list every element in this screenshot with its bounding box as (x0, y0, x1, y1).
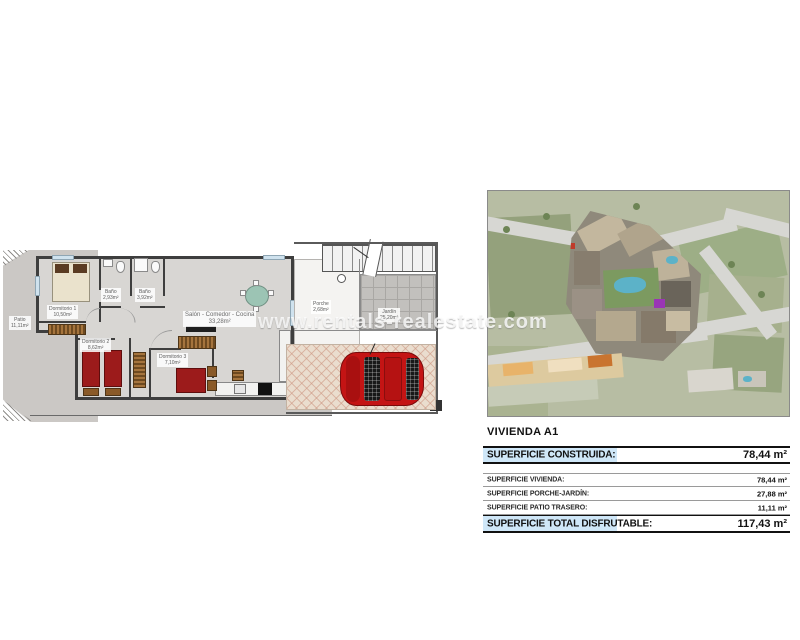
dining-chair-3 (253, 280, 259, 286)
row-value: 11,11 m² (758, 503, 787, 512)
surface-total-row: SUPERFICIE TOTAL DISFRUTABLE: 117,43 m² (483, 515, 790, 533)
label-bano2-area: 3,92m² (137, 295, 153, 301)
label-dormitorio2-area: 8,62m² (88, 345, 104, 351)
wall-bath2-right (163, 256, 165, 296)
aerial-pool-br (743, 376, 752, 382)
shower-bath2 (134, 258, 148, 272)
closet-strip (133, 352, 146, 388)
bed-dorm2-left (82, 350, 100, 387)
sofa (178, 336, 216, 349)
label-dormitorio1: Dormitorio 1 10,50m² (47, 305, 78, 319)
sink-bath1 (103, 259, 113, 267)
wall-dorm1-right-a (99, 256, 101, 290)
row-value: 78,44 m² (757, 476, 787, 485)
row-label: SUPERFICIE PATIO TRASERO: (487, 504, 587, 511)
row-label: SUPERFICIE PORCHE-JARDÍN: (487, 490, 589, 497)
surface-row-vivienda: SUPERFICIE VIVIENDA: 78,44 m² (483, 473, 790, 487)
boundary-top (294, 242, 438, 244)
aerial-buildings-bottomright (687, 367, 733, 392)
pillow-right (73, 264, 87, 273)
wall-bottom (75, 397, 294, 400)
aerial-building-7 (596, 311, 636, 341)
window-top-1 (52, 255, 74, 260)
car-windshield (364, 357, 380, 401)
surface-header-row: SUPERFICIE CONSTRUIDA: 78,44 m² (483, 446, 790, 464)
wall-top (36, 256, 294, 259)
aerial-building-4 (661, 281, 691, 307)
kitchen-cabinet (232, 370, 244, 381)
nightstand-dorm2-right (105, 388, 121, 396)
row-value: 27,88 m² (757, 489, 787, 498)
toilet-bath1 (116, 261, 125, 273)
nightstand-dorm3-bottom (207, 380, 217, 391)
kitchen-oven (258, 383, 272, 395)
pillow-left (55, 264, 69, 273)
aerial-pool-small (666, 256, 678, 264)
unit-title: VIVIENDA A1 (487, 426, 559, 438)
wall-bath-bottom-b (140, 306, 165, 308)
wall-step-v (75, 330, 78, 400)
label-salon-name: Salón - Comedor - Cocina (185, 312, 254, 318)
nightstand-dorm2-left (83, 388, 99, 396)
label-patio: Patio 11,11m² (9, 316, 31, 330)
watermark-text: www.rentals-realestate.com (258, 311, 548, 334)
label-dormitorio1-area: 10,50m² (53, 312, 71, 318)
label-patio-area: 11,11m² (11, 323, 29, 329)
aerial-purple-roof (654, 299, 665, 308)
label-salon: Salón - Comedor - Cocina 33,28m² (183, 311, 256, 327)
label-bano1-area: 2,93m² (103, 295, 119, 301)
surface-row-patio-trasero: SUPERFICIE PATIO TRASERO: 11,11 m² (483, 501, 790, 515)
label-dormitorio3-area: 7,10m² (165, 360, 181, 366)
dining-chair-2 (268, 290, 274, 296)
wall-bath-divider (130, 256, 132, 296)
wall-dorm1-bottom (36, 321, 86, 323)
window-left (35, 276, 40, 296)
row-label: SUPERFICIE VIVIENDA: (487, 477, 564, 484)
aerial-tree-2 (543, 213, 550, 220)
total-label: SUPERFICIE TOTAL DISFRUTABLE: (487, 518, 652, 529)
car-hood-line (346, 356, 360, 402)
car-rear-window (406, 358, 419, 400)
label-dormitorio2: Dormitorio 2 8,62m² (80, 338, 111, 352)
floor-plan (0, 0, 470, 190)
porch-column (337, 274, 346, 283)
kitchen-cooktop (234, 384, 246, 394)
dining-chair-1 (240, 290, 246, 296)
aerial-tree-4 (728, 261, 735, 268)
aerial-building-5 (574, 251, 600, 285)
aerial-tree-1 (503, 226, 510, 233)
label-dormitorio3: Dormitorio 3 7,10m² (157, 353, 188, 367)
wall-dorm2-right (129, 338, 131, 398)
header-label: SUPERFICIE CONSTRUIDA: (487, 450, 615, 461)
wardrobe-dorm2 (48, 324, 86, 335)
dining-table (245, 285, 269, 307)
nightstand-dorm3-top (207, 366, 217, 377)
wall-bath-bottom-a (99, 306, 121, 308)
bed-dorm3 (176, 368, 206, 393)
aerial-tree-3 (633, 203, 640, 210)
aerial-building-9 (666, 311, 690, 331)
kitchen-counter-bottom (215, 382, 291, 396)
toilet-bath2 (151, 261, 160, 273)
aerial-beige-detail-3 (588, 354, 613, 368)
label-salon-area: 33,28m² (209, 319, 231, 325)
aerial-tree-5 (758, 291, 765, 298)
real-estate-flyer: Patio 11,11m² Dormitorio 1 10,50m² Baño … (0, 0, 800, 640)
boundary-bottom-right (286, 412, 438, 414)
bed-dorm2-right (104, 350, 122, 387)
wall-dorm3-left (149, 348, 151, 398)
surface-row-porche-jardin: SUPERFICIE PORCHE-JARDÍN: 27,88 m² (483, 487, 790, 501)
car-roll-bar (384, 357, 402, 401)
label-bano1: Baño 2,93m² (101, 288, 121, 302)
label-bano2: Baño 3,92m² (135, 288, 155, 302)
header-value: 78,44 m² (743, 449, 787, 461)
aerial-site-photo (487, 190, 790, 417)
window-top-2 (263, 255, 285, 260)
total-value: 117,43 m² (737, 518, 787, 530)
